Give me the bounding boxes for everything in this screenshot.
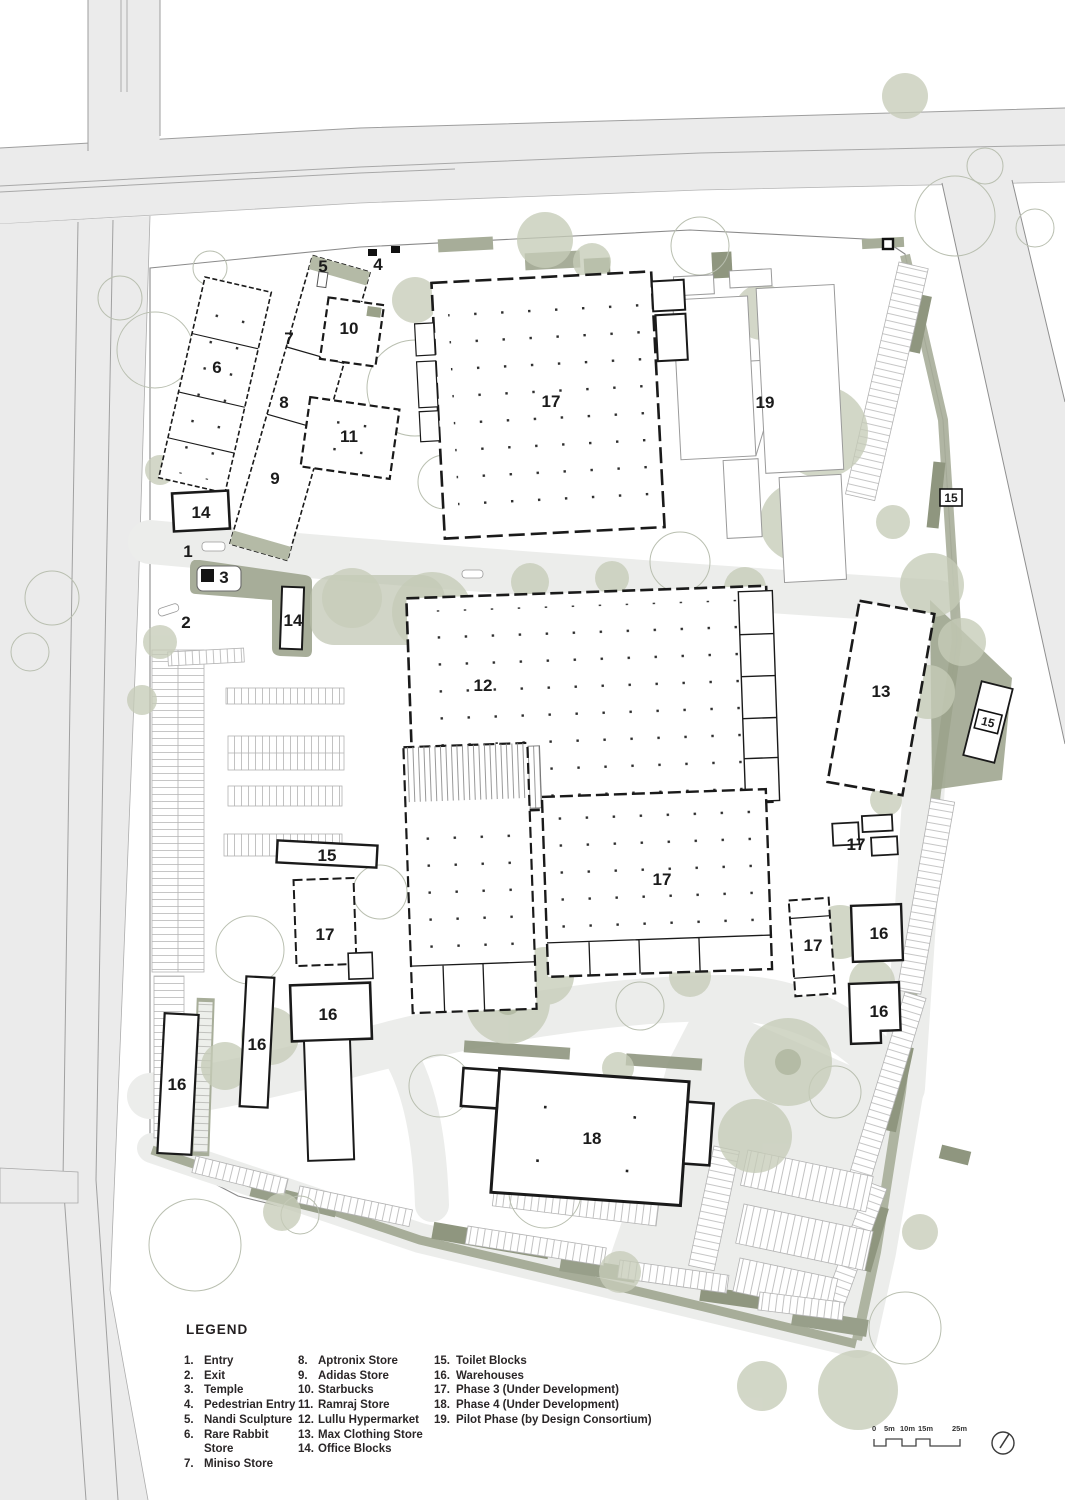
label-ramraj: 11	[340, 427, 358, 446]
scale-tick-label: 25m	[952, 1424, 967, 1433]
north-arrow-icon	[986, 1426, 1020, 1460]
label-phase3-northeast: 17	[847, 835, 866, 854]
label-phase3-east: 17	[804, 936, 823, 955]
label-warehouse-west-big: 16	[319, 1005, 338, 1024]
label-pilot-phase: 19	[756, 393, 775, 412]
building-lullu-lower-wing	[403, 743, 536, 1013]
legend-item: 2.Exit	[184, 1369, 298, 1384]
label-nandi-sculpture: 5	[318, 257, 327, 276]
label-miniso: 7	[284, 329, 293, 348]
label-phase3-north: 17	[542, 392, 561, 411]
label-pedestrian-entry: 4	[373, 255, 383, 274]
legend-item: 6.Rare Rabbit Store	[184, 1428, 298, 1457]
label-entry: 1	[183, 542, 192, 561]
label-aptronix: 8	[279, 393, 288, 412]
legend-item: 18.Phase 4 (Under Development)	[434, 1398, 664, 1413]
label-warehouse-east-1: 16	[870, 924, 889, 943]
label-max: 13	[872, 682, 891, 701]
legend-item: 13.Max Clothing Store	[298, 1428, 434, 1443]
label-toilet-strip: 15	[318, 846, 337, 865]
legend-item: 16.Warehouses	[434, 1369, 664, 1384]
site-plan-sheet: 1 2 3 4 5 6 7 8 9 10 11 12 13 14 14 15 1…	[0, 0, 1065, 1500]
legend-item: 11.Ramraj Store	[298, 1398, 434, 1413]
label-phase4: 18	[583, 1129, 602, 1148]
legend-item: 8.Aptronix Store	[298, 1354, 434, 1369]
label-warehouse-narrow: 16	[248, 1035, 267, 1054]
label-office-a: 14	[192, 503, 211, 522]
label-phase3-west: 17	[316, 925, 335, 944]
legend-column-1: 1.Entry 2.Exit 3.Temple 4.Pedestrian Ent…	[184, 1354, 298, 1472]
legend-item: 1.Entry	[184, 1354, 298, 1369]
label-temple: 3	[219, 568, 228, 587]
label-warehouse-east-2: 16	[870, 1002, 889, 1021]
legend-item: 15.Toilet Blocks	[434, 1354, 664, 1369]
legend-item: 12.Lullu Hypermarket	[298, 1413, 434, 1428]
legend-title: LEGEND	[186, 1322, 664, 1337]
legend-column-3: 15.Toilet Blocks 16.Warehouses 17.Phase …	[434, 1354, 664, 1428]
legend-item: 10.Starbucks	[298, 1383, 434, 1398]
label-adidas: 9	[270, 469, 279, 488]
scale-tick-label: 15m	[918, 1424, 933, 1433]
legend-item: 4.Pedestrian Entry	[184, 1398, 298, 1413]
label-rare-rabbit: 6	[212, 358, 221, 377]
scale-tick-label: 0	[872, 1424, 876, 1433]
legend-item: 7.Miniso Store	[184, 1457, 298, 1472]
north-gate-marker	[883, 239, 893, 249]
legend-column-2: 8.Aptronix Store 9.Adidas Store 10.Starb…	[298, 1354, 434, 1457]
label-toilet-north: 15	[940, 489, 962, 506]
legend-item: 19.Pilot Phase (by Design Consortium)	[434, 1413, 664, 1428]
svg-text:15: 15	[944, 491, 958, 505]
legend-item: 9.Adidas Store	[298, 1369, 434, 1384]
label-warehouse-far-west: 16	[168, 1075, 187, 1094]
legend-item: 17.Phase 3 (Under Development)	[434, 1383, 664, 1398]
legend: LEGEND 1.Entry 2.Exit 3.Temple 4.Pedestr…	[184, 1322, 664, 1472]
label-office-b: 14	[284, 611, 303, 630]
scale-tick-label: 10m	[900, 1424, 915, 1433]
legend-item: 5.Nandi Sculpture	[184, 1413, 298, 1428]
legend-item: 14.Office Blocks	[298, 1442, 434, 1457]
site-plan-drawing: 1 2 3 4 5 6 7 8 9 10 11 12 13 14 14 15 1…	[0, 0, 1065, 1500]
label-exit: 2	[181, 613, 190, 632]
scale-bar-graphic	[872, 1433, 972, 1459]
scale-tick-label: 5m	[884, 1424, 895, 1433]
legend-item: 3.Temple	[184, 1383, 298, 1398]
label-phase3-central: 17	[653, 870, 672, 889]
label-lullu: 12	[474, 676, 493, 695]
label-starbucks: 10	[340, 319, 359, 338]
